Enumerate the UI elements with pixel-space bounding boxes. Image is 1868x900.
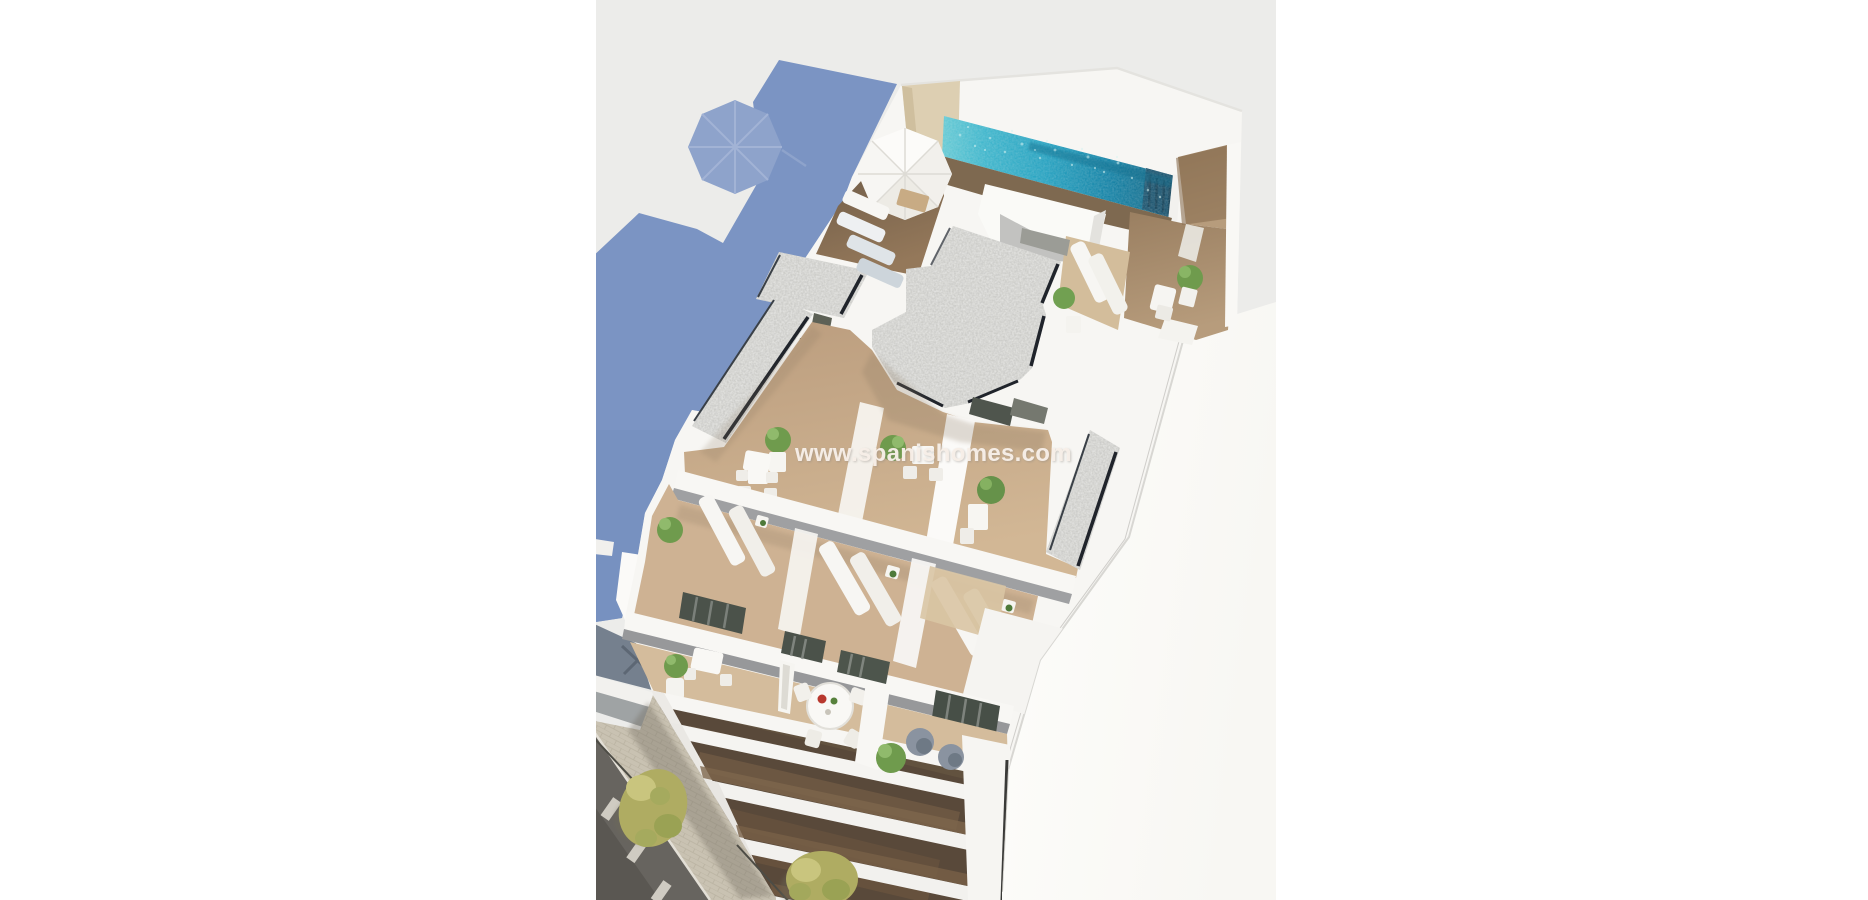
svg-text:www.spanishomes.com: www.spanishomes.com: [794, 440, 1072, 467]
